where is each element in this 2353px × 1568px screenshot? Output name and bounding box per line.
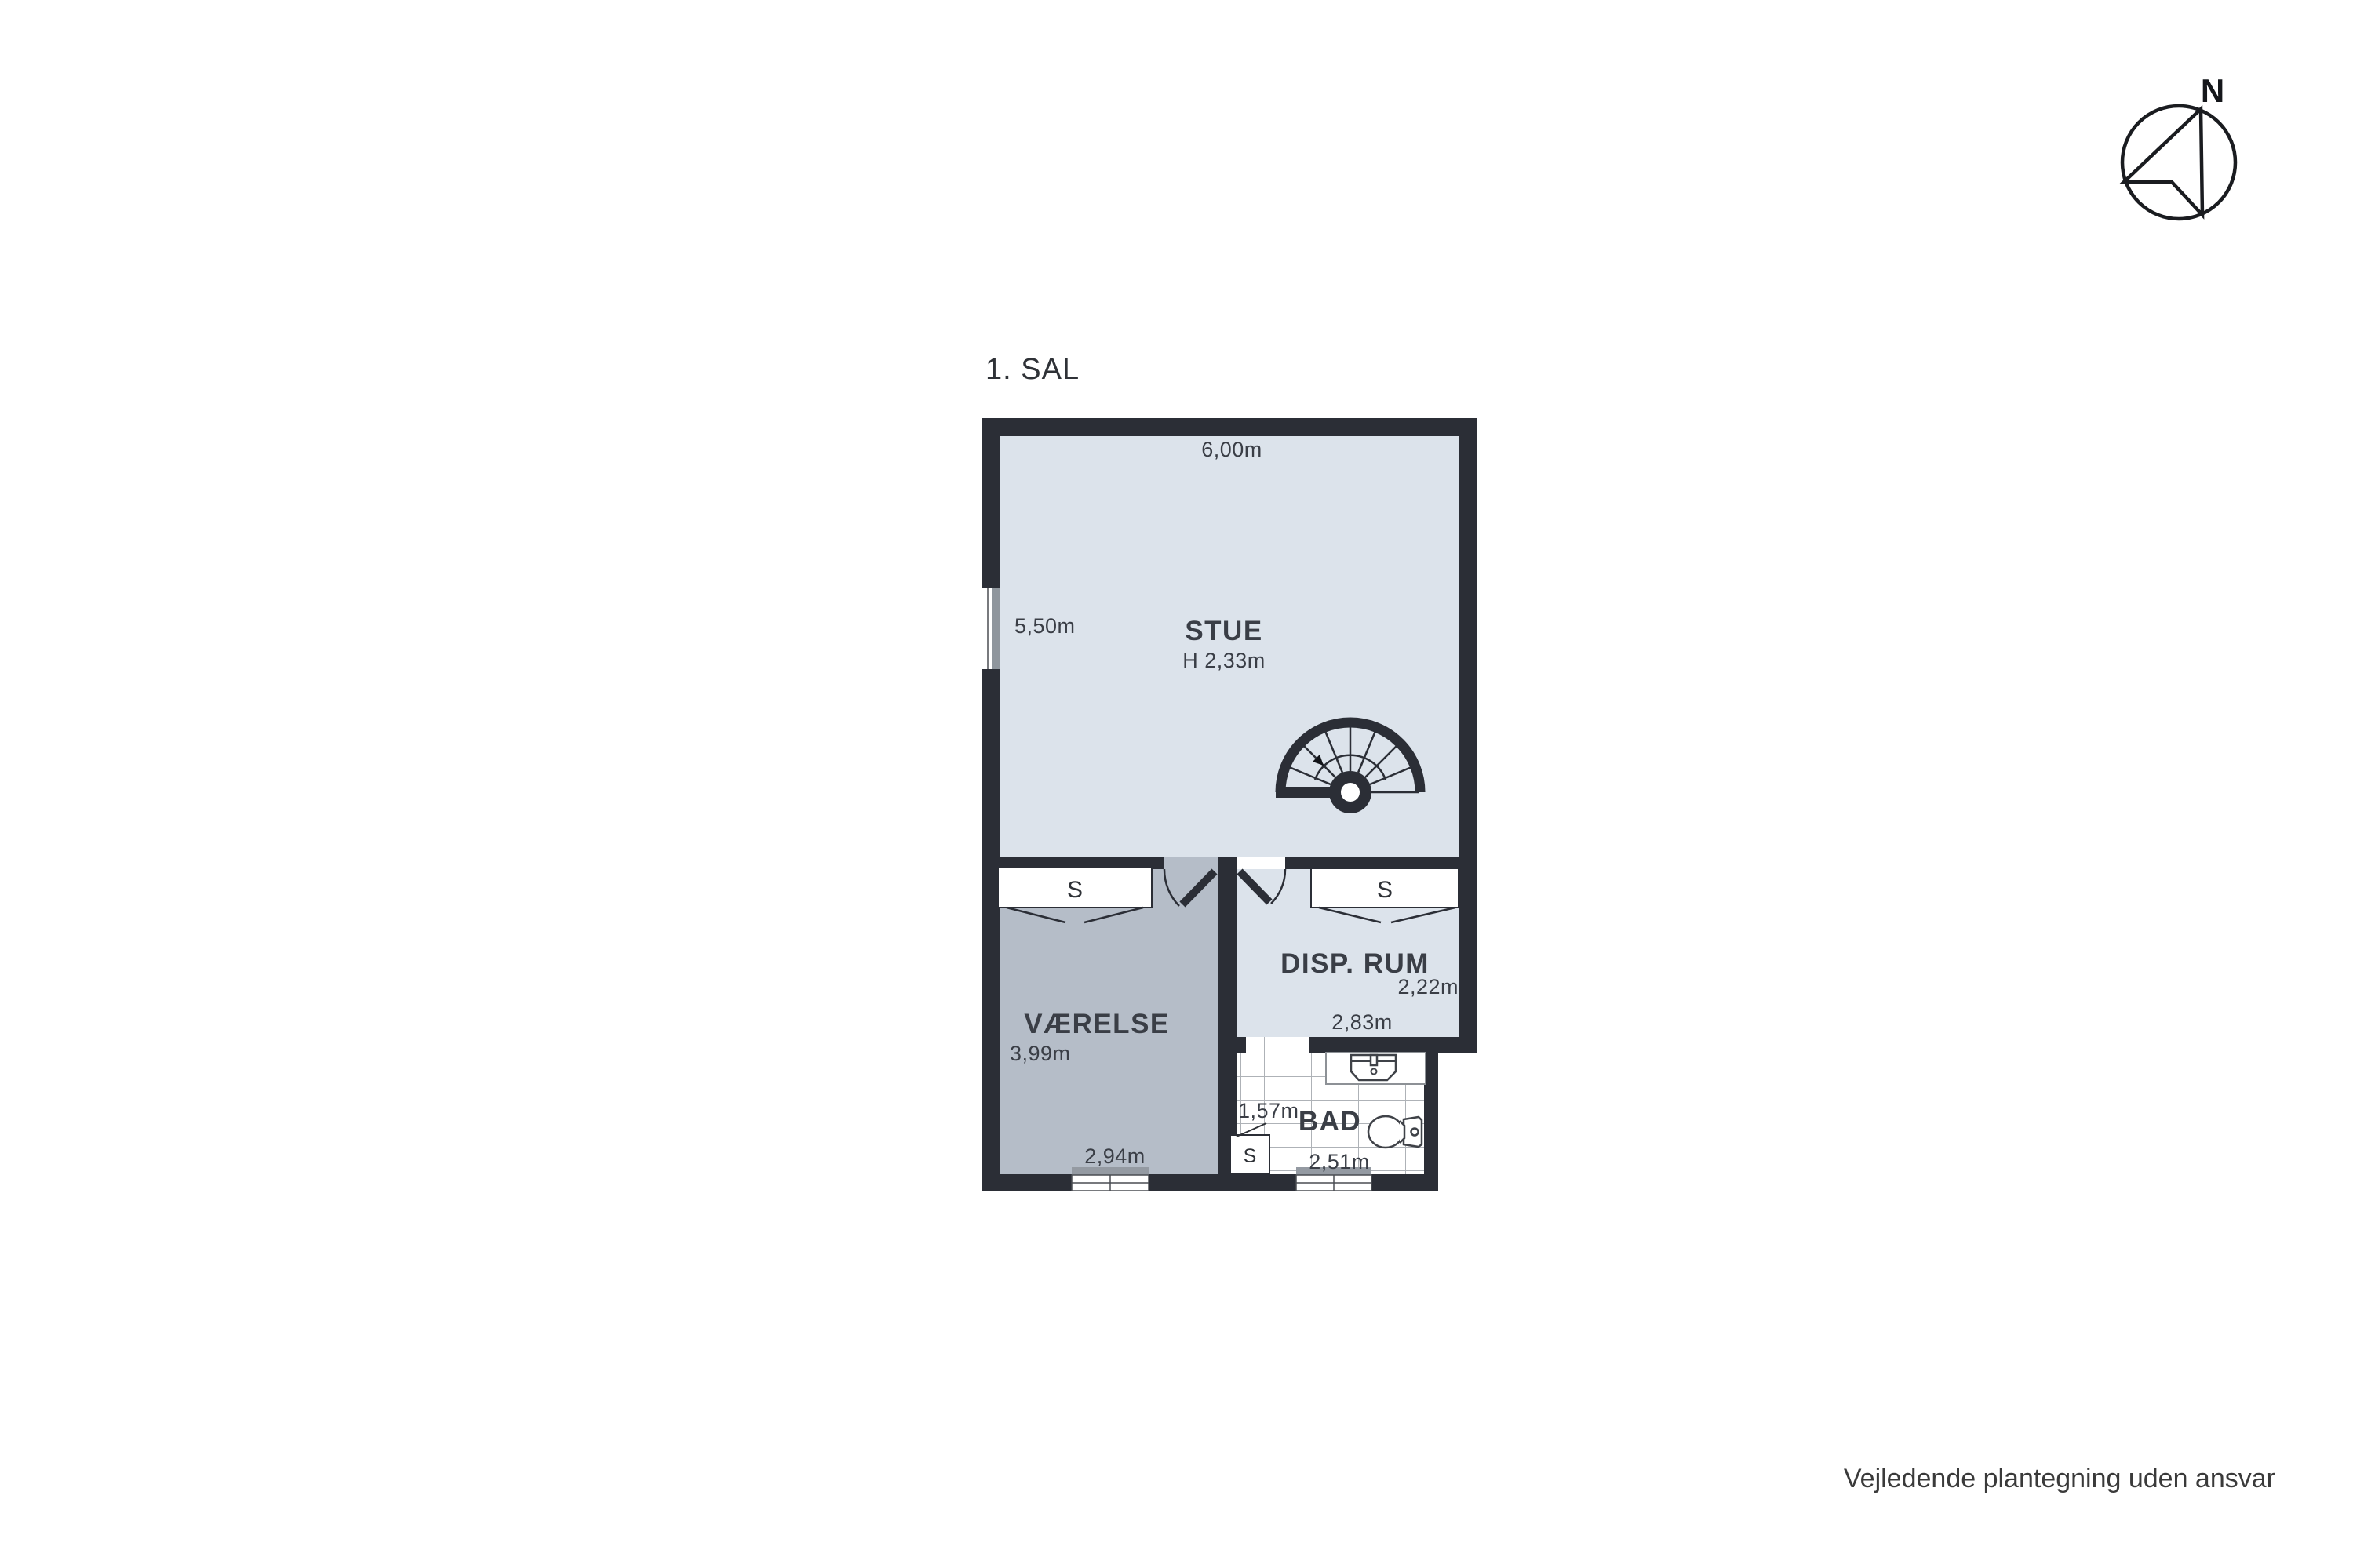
wall-right (1459, 418, 1477, 1053)
sink (1326, 1053, 1426, 1084)
vaerelse-name: VÆRELSE (1024, 1009, 1170, 1039)
vaerelse-door-floor-patch (1164, 857, 1218, 871)
stue-side-dim: 5,50m (1014, 614, 1076, 638)
stue-floor (1000, 436, 1459, 857)
vaerelse-bottom-dim: 2,94m (1084, 1144, 1146, 1168)
wall-left (982, 418, 1000, 1191)
compass-north-label: N (2201, 72, 2224, 109)
disclaimer-text: Vejledende plantegning uden ansvar (1844, 1464, 2275, 1493)
compass-circle (2122, 106, 2235, 219)
stair-base-bar (1276, 787, 1337, 798)
stue-name: STUE (1185, 616, 1262, 646)
wall-stue-bottom-right (1285, 857, 1477, 869)
closet-label: S (1067, 877, 1083, 903)
plan-title: 1. SAL (985, 353, 1080, 386)
toilet-bowl (1368, 1116, 1403, 1148)
stair-center-hole (1341, 783, 1360, 802)
bad-side-dim: 1,57m (1238, 1099, 1299, 1122)
wall-top (982, 418, 1477, 436)
closet-label: S (1377, 877, 1393, 903)
stue-window (982, 588, 1000, 669)
compass: N (2122, 72, 2235, 219)
wall-disp-rum-bottom (1309, 1037, 1477, 1053)
wall-bad-top-stub (1218, 1037, 1246, 1053)
vaerelse-window (1072, 1167, 1149, 1191)
window-sill-strip (992, 588, 1000, 669)
bad-closet: S (1230, 1135, 1269, 1174)
bad-bottom-dim: 2,51m (1309, 1150, 1370, 1173)
stue-top-dim: 6,00m (1201, 438, 1262, 461)
stue-ceiling-height: H 2,33m (1182, 649, 1266, 672)
window-sill (1072, 1167, 1149, 1175)
floor-plan-canvas: S S S (0, 0, 2353, 1568)
closet-label: S (1244, 1145, 1257, 1167)
toilet (1368, 1116, 1422, 1148)
bad-name: BAD (1299, 1106, 1361, 1137)
floor-plan-page: S S S (0, 0, 2353, 1568)
disp-rum-side-dim: 2,22m (1397, 975, 1459, 999)
disp-rum-bottom-dim: 2,83m (1331, 1010, 1393, 1034)
sink-faucet (1371, 1055, 1377, 1065)
toilet-seat-joint (1400, 1121, 1404, 1143)
vaerelse-side-dim: 3,99m (1010, 1042, 1071, 1065)
